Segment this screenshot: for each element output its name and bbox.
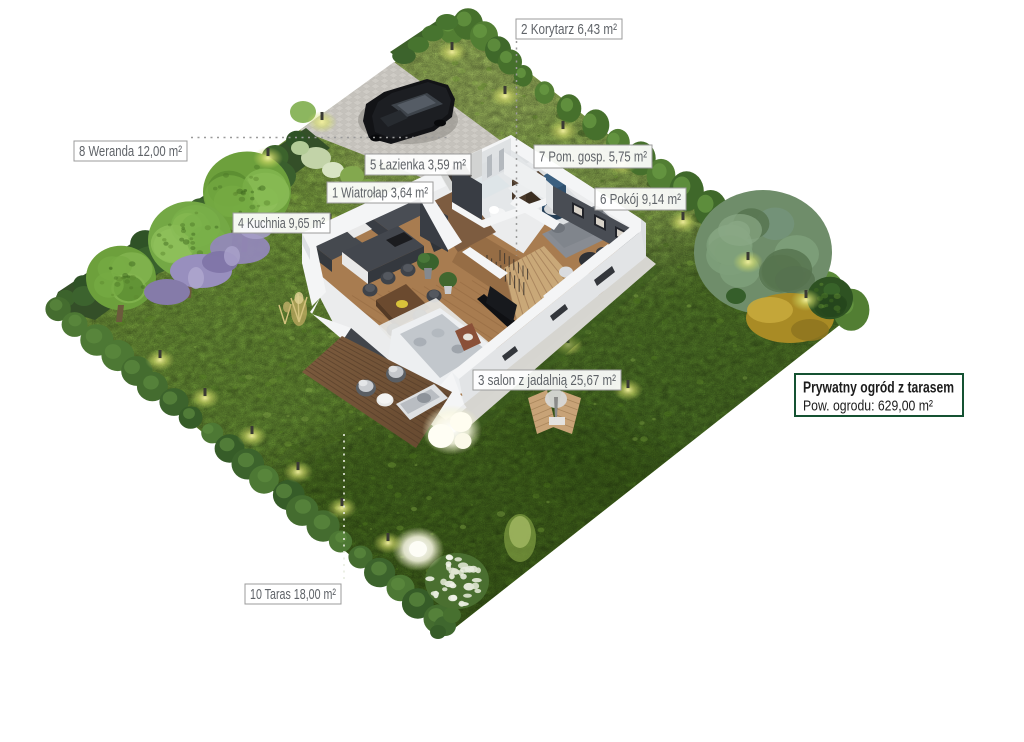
svg-text:4 Kuchnia 9,65 m²: 4 Kuchnia 9,65 m² [238,215,325,232]
svg-text:10 Taras 18,00 m²: 10 Taras 18,00 m² [250,586,336,603]
svg-text:Pow. ogrodu: 629,00 m²: Pow. ogrodu: 629,00 m² [803,398,933,415]
svg-text:2 Korytarz 6,43 m²: 2 Korytarz 6,43 m² [521,21,617,38]
svg-text:8 Weranda 12,00 m²: 8 Weranda 12,00 m² [79,143,182,160]
svg-text:5 Łazienka 3,59 m²: 5 Łazienka 3,59 m² [370,157,466,174]
svg-text:Prywatny ogród z tarasem: Prywatny ogród z tarasem [803,380,954,397]
svg-text:1 Wiatrołap 3,64 m²: 1 Wiatrołap 3,64 m² [332,185,428,202]
svg-text:6 Pokój 9,14 m²: 6 Pokój 9,14 m² [600,191,681,208]
svg-text:3 salon z jadalnią 25,67 m²: 3 salon z jadalnią 25,67 m² [478,372,616,389]
svg-text:7 Pom. gosp. 5,75 m²: 7 Pom. gosp. 5,75 m² [539,149,647,166]
